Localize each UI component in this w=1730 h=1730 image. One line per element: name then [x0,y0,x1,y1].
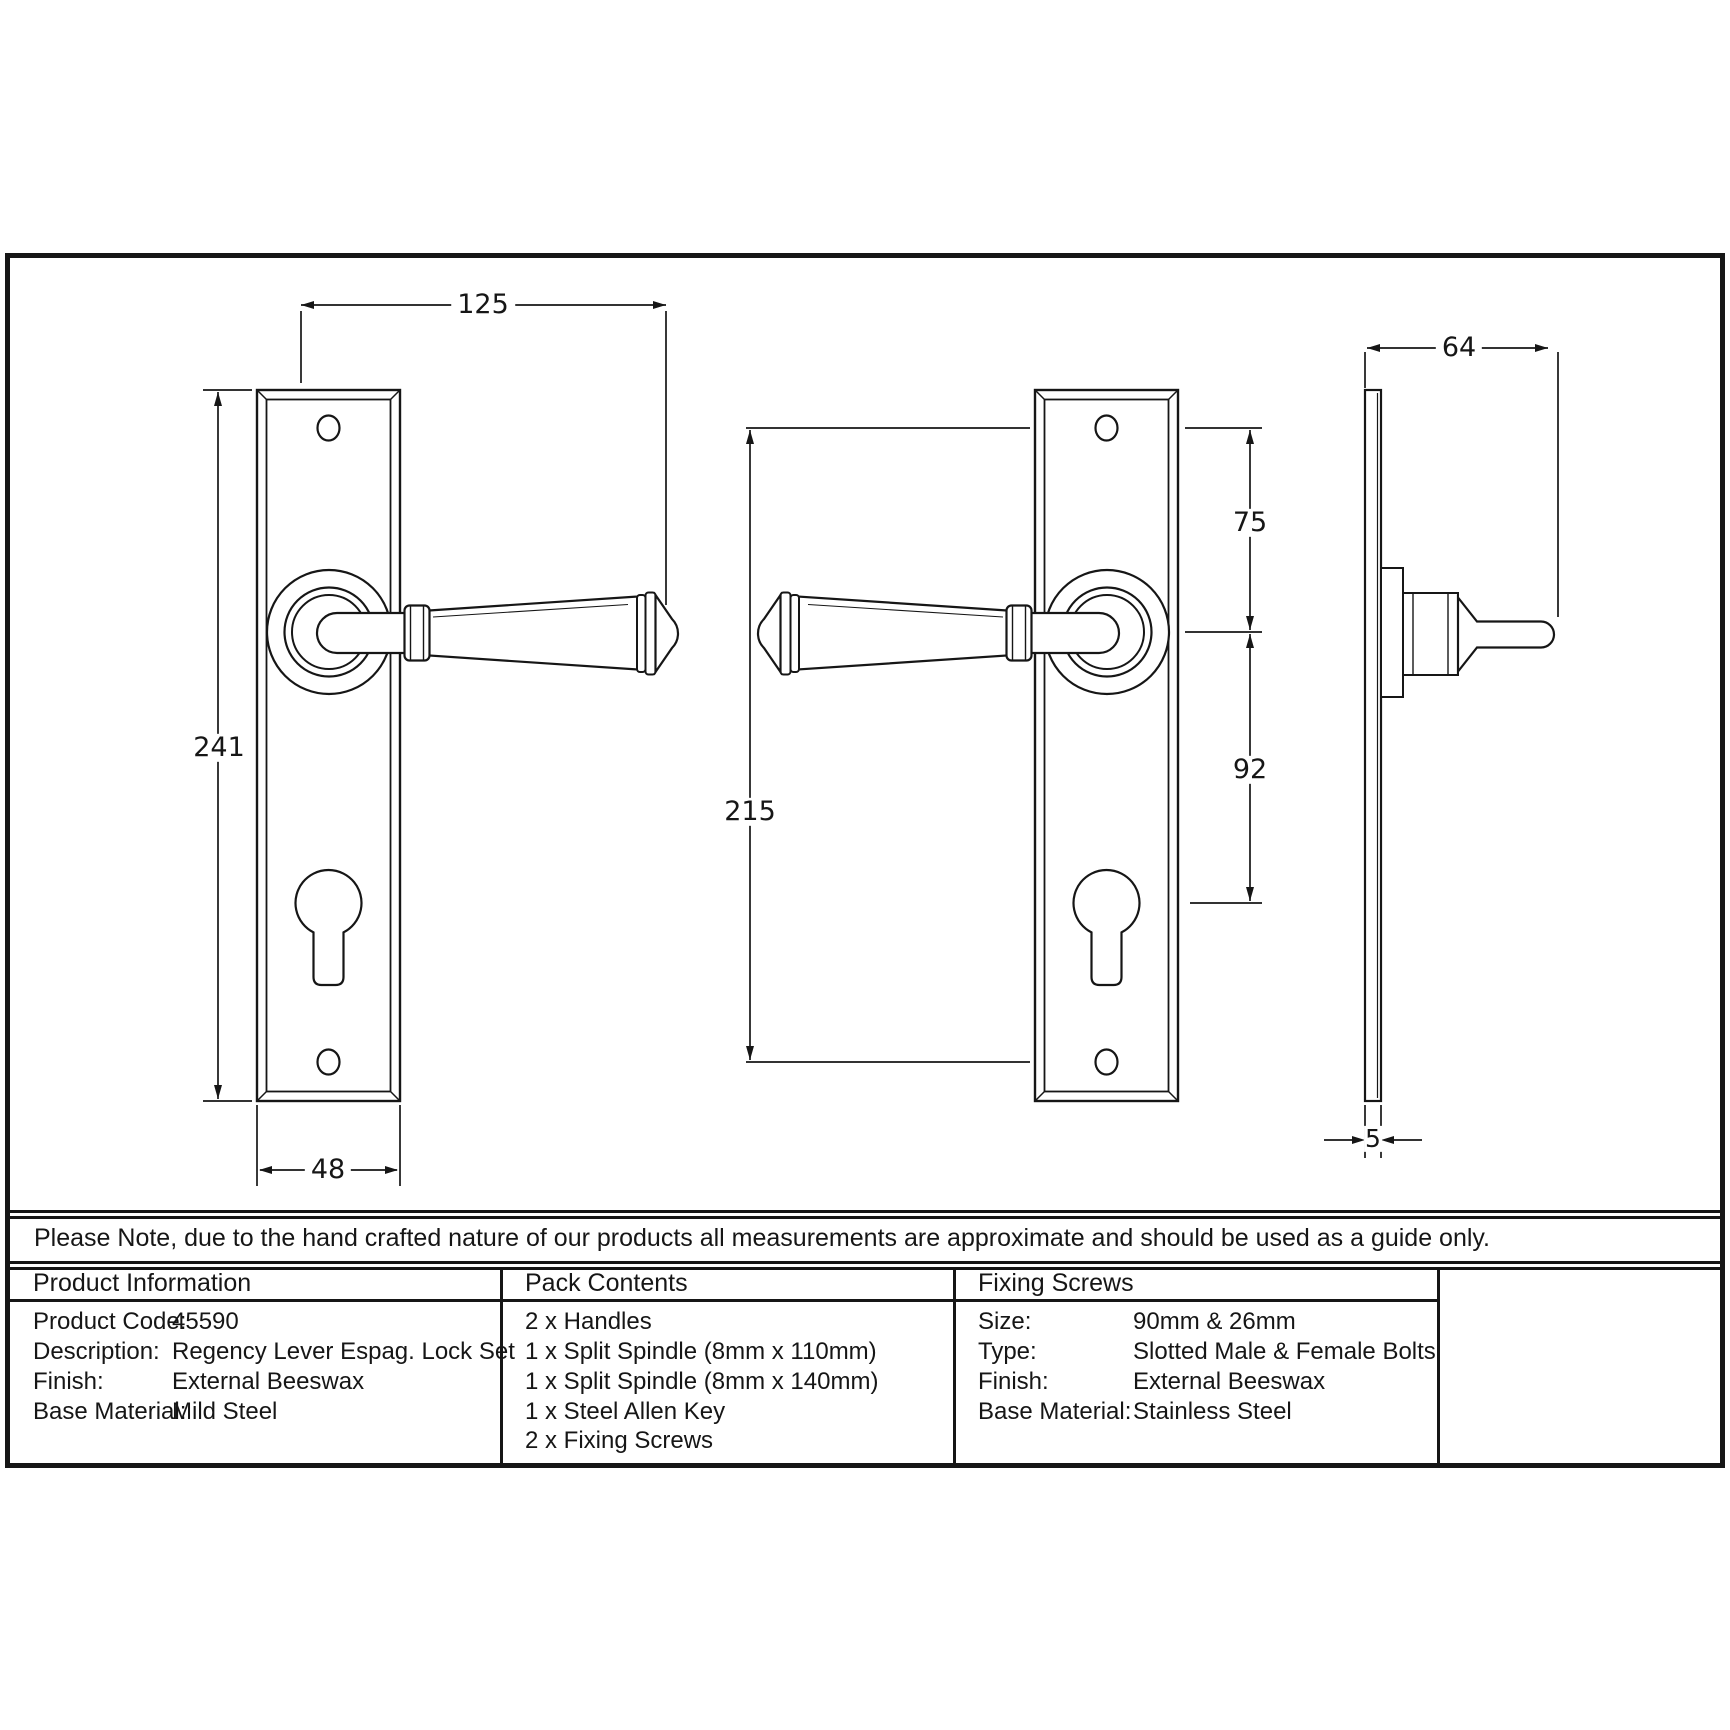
technical-drawing [0,0,1730,1730]
rule [10,1299,1437,1302]
row-label: Base Material: [33,1397,186,1427]
pack-item: 1 x Split Spindle (8mm x 110mm) [525,1337,877,1367]
row-value: Stainless Steel [1133,1397,1292,1427]
header-product-information: Product Information [33,1267,251,1299]
pack-item: 1 x Steel Allen Key [525,1397,725,1427]
row-label: Description: [33,1337,160,1367]
dim-projection: 64 [1436,334,1482,362]
pack-item: 2 x Fixing Screws [525,1426,713,1456]
rule [10,1267,1720,1270]
pack-item: 1 x Split Spindle (8mm x 140mm) [525,1367,878,1397]
row-label: Finish: [33,1367,104,1397]
from-the-anvil-logo: A nvil From the ◆ ® [1445,1300,1720,1463]
dim-screw-centres: 215 [718,798,782,826]
side-view [1365,390,1554,1101]
row-value: External Beeswax [172,1367,364,1397]
dim-plate-width: 48 [305,1156,351,1184]
header-fixing-screws: Fixing Screws [978,1267,1134,1299]
dim-handle-to-keyhole: 92 [1227,756,1273,784]
pack-item: 2 x Handles [525,1307,652,1337]
rule [1437,1267,1440,1463]
dim-plate-thickness: 5 [1364,1126,1382,1152]
row-label: Finish: [978,1367,1049,1397]
rule [953,1267,956,1463]
row-label: Product Code: [33,1307,186,1337]
measurement-note: Please Note, due to the hand crafted nat… [13,1216,1713,1261]
row-label: Type: [978,1337,1037,1367]
dim-screw-to-handle: 75 [1227,509,1273,537]
rule [10,1261,1720,1264]
dim-plate-height: 241 [187,734,251,762]
rule [10,1210,1720,1213]
row-value: Regency Lever Espag. Lock Set [172,1337,515,1367]
row-value: Mild Steel [172,1397,277,1427]
row-label: Base Material: [978,1397,1131,1427]
row-value: 45590 [172,1307,239,1337]
header-pack-contents: Pack Contents [525,1267,688,1299]
row-label: Size: [978,1307,1031,1337]
dim-lever-length: 125 [451,291,515,319]
row-value: Slotted Male & Female Bolts [1133,1337,1436,1367]
dimension-lines [203,301,1558,1186]
row-value: 90mm & 26mm [1133,1307,1296,1337]
row-value: External Beeswax [1133,1367,1325,1397]
spec-sheet: 125 241 48 215 75 92 64 5 Please Note, d… [0,0,1730,1730]
